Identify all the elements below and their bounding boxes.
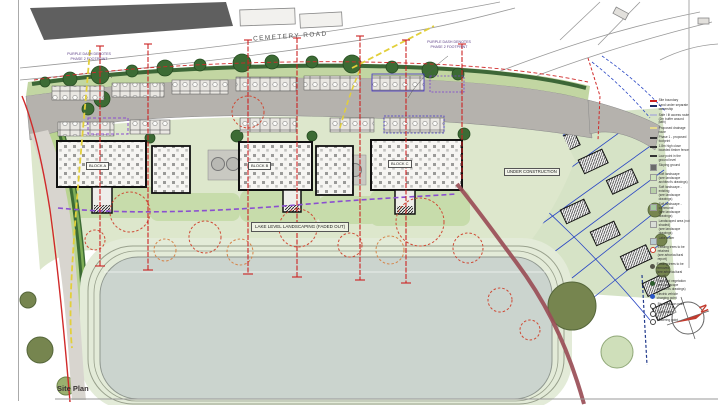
legend-label: Electric vehicle charging point [657,293,690,301]
site-plan-sheet: CEMETERY ROAD PURPLE DASH DENOTES PHASE … [0,0,720,405]
legend-swatch-line [650,105,657,107]
legend-item: Proposed vegetation (see landscape archi… [650,280,690,292]
legend-item: Watering point [650,319,690,326]
phase2-note-left: PURPLE DASH DENOTES PHASE 2 FOOTPRINT [58,52,120,61]
existing-building-mass [30,2,233,40]
legend-label: Watering point [658,319,678,323]
legend-item: Soft landscape - communal (see landscape… [650,203,690,218]
legend-item: Existing trees to be retained (see arbor… [650,246,690,261]
legend-item: Existing trees to be removed (see arbori… [650,263,690,278]
block-c-label: BLOCK C [388,160,412,168]
lake [80,238,572,405]
legend-swatch-line [650,155,657,157]
legend-item: Low point in the ground level [650,155,690,163]
legend-item: Bin collection point [650,303,690,310]
legend-item: Site boundary [650,99,690,103]
block-c-footprint [371,140,462,190]
legend-item: Landscaped area (not shaded) (see landsc… [650,220,690,235]
legend-swatch-ring [650,303,656,309]
legend-label: Existing trees to be removed (see arbori… [657,263,690,278]
legend-item: Proposed drainage route [650,127,690,135]
legend-label: 1.8m high close boarded timber fence [659,145,690,153]
legend-swatch-dot [650,264,655,269]
legend-label: Existing trees to be retained (see arbor… [658,246,690,261]
legend-item: Safe / lit access route (2m buffer aroun… [650,114,690,126]
legend-label: Land under separate ownership [659,104,690,112]
legend-swatch-ev [650,294,655,299]
legend-swatch-square [650,187,657,194]
legend-label: Safe / lit access route (2m buffer aroun… [659,114,690,126]
legend-swatch-square [650,238,657,245]
legend-label: Bin collection point [658,303,685,307]
phase2-note-right: PURPLE DASH DENOTES PHASE 2 FOOTPRINT [418,40,480,49]
legend-swatch-square [650,164,657,171]
legend-swatch-dot [650,281,655,286]
sheet-title: Site Plan [57,384,89,393]
legend-swatch-ring [650,319,656,325]
legend-item: Soft landscape (see landscape architect'… [650,173,690,185]
legend-label: Site boundary [659,99,679,103]
legend-item: Sloping ground [650,164,690,172]
legend-label: Soft landscape - communal (see landscape… [659,203,690,218]
legend-item: Soft landscape - existing (see landscape… [650,186,690,201]
legend-item: Land under separate ownership [650,104,690,112]
legend-swatch-line [650,127,657,129]
lake-landscaping-label: LAKE LEVEL LANDSCAPING (FADED OUT) [251,222,349,232]
legend-label: Sloping ground [659,164,680,168]
legend-label: Soft landscape - existing (see landscape… [659,186,690,201]
legend-panel: Site boundary Land under separate owners… [650,99,690,327]
legend-label: Cycle store [658,311,674,315]
legend-item: Phase 1 - proposed footprint [650,136,690,144]
legend-swatch-square [650,174,657,181]
legend-swatch-line [650,137,657,139]
legend-swatch-square [650,221,657,228]
block-wing-2 [316,146,353,195]
block-wing-1 [152,146,190,193]
legend-swatch-ring [650,247,656,253]
legend-label: Proposed vegetation (see landscape archi… [657,280,690,292]
legend-label: Soft landscape (see landscape architect'… [659,173,690,185]
legend-label: Proposed drainage route [659,127,690,135]
legend-item: Lake water [650,237,690,245]
legend-swatch-ring [650,311,656,317]
block-a-label: BLOCK A [86,162,109,170]
legend-swatch-line [650,100,657,102]
legend-label: Low point in the ground level [659,155,690,163]
legend-label: Landscaped area (not shaded) (see landsc… [659,220,690,235]
legend-label: Lake water [659,237,675,241]
legend-swatch-line [650,146,657,148]
legend-swatch-line [650,114,657,116]
legend-item: Electric vehicle charging point [650,293,690,301]
legend-label: Phase 1 - proposed footprint [659,136,690,144]
block-b-label: BLOCK B [248,162,271,170]
legend-item: 1.8m high close boarded timber fence [650,145,690,153]
lake-water [100,257,552,399]
under-construction-label: UNDER CONSTRUCTION [504,168,560,176]
legend-swatch-square [650,204,657,211]
legend-item: Cycle store [650,311,690,318]
